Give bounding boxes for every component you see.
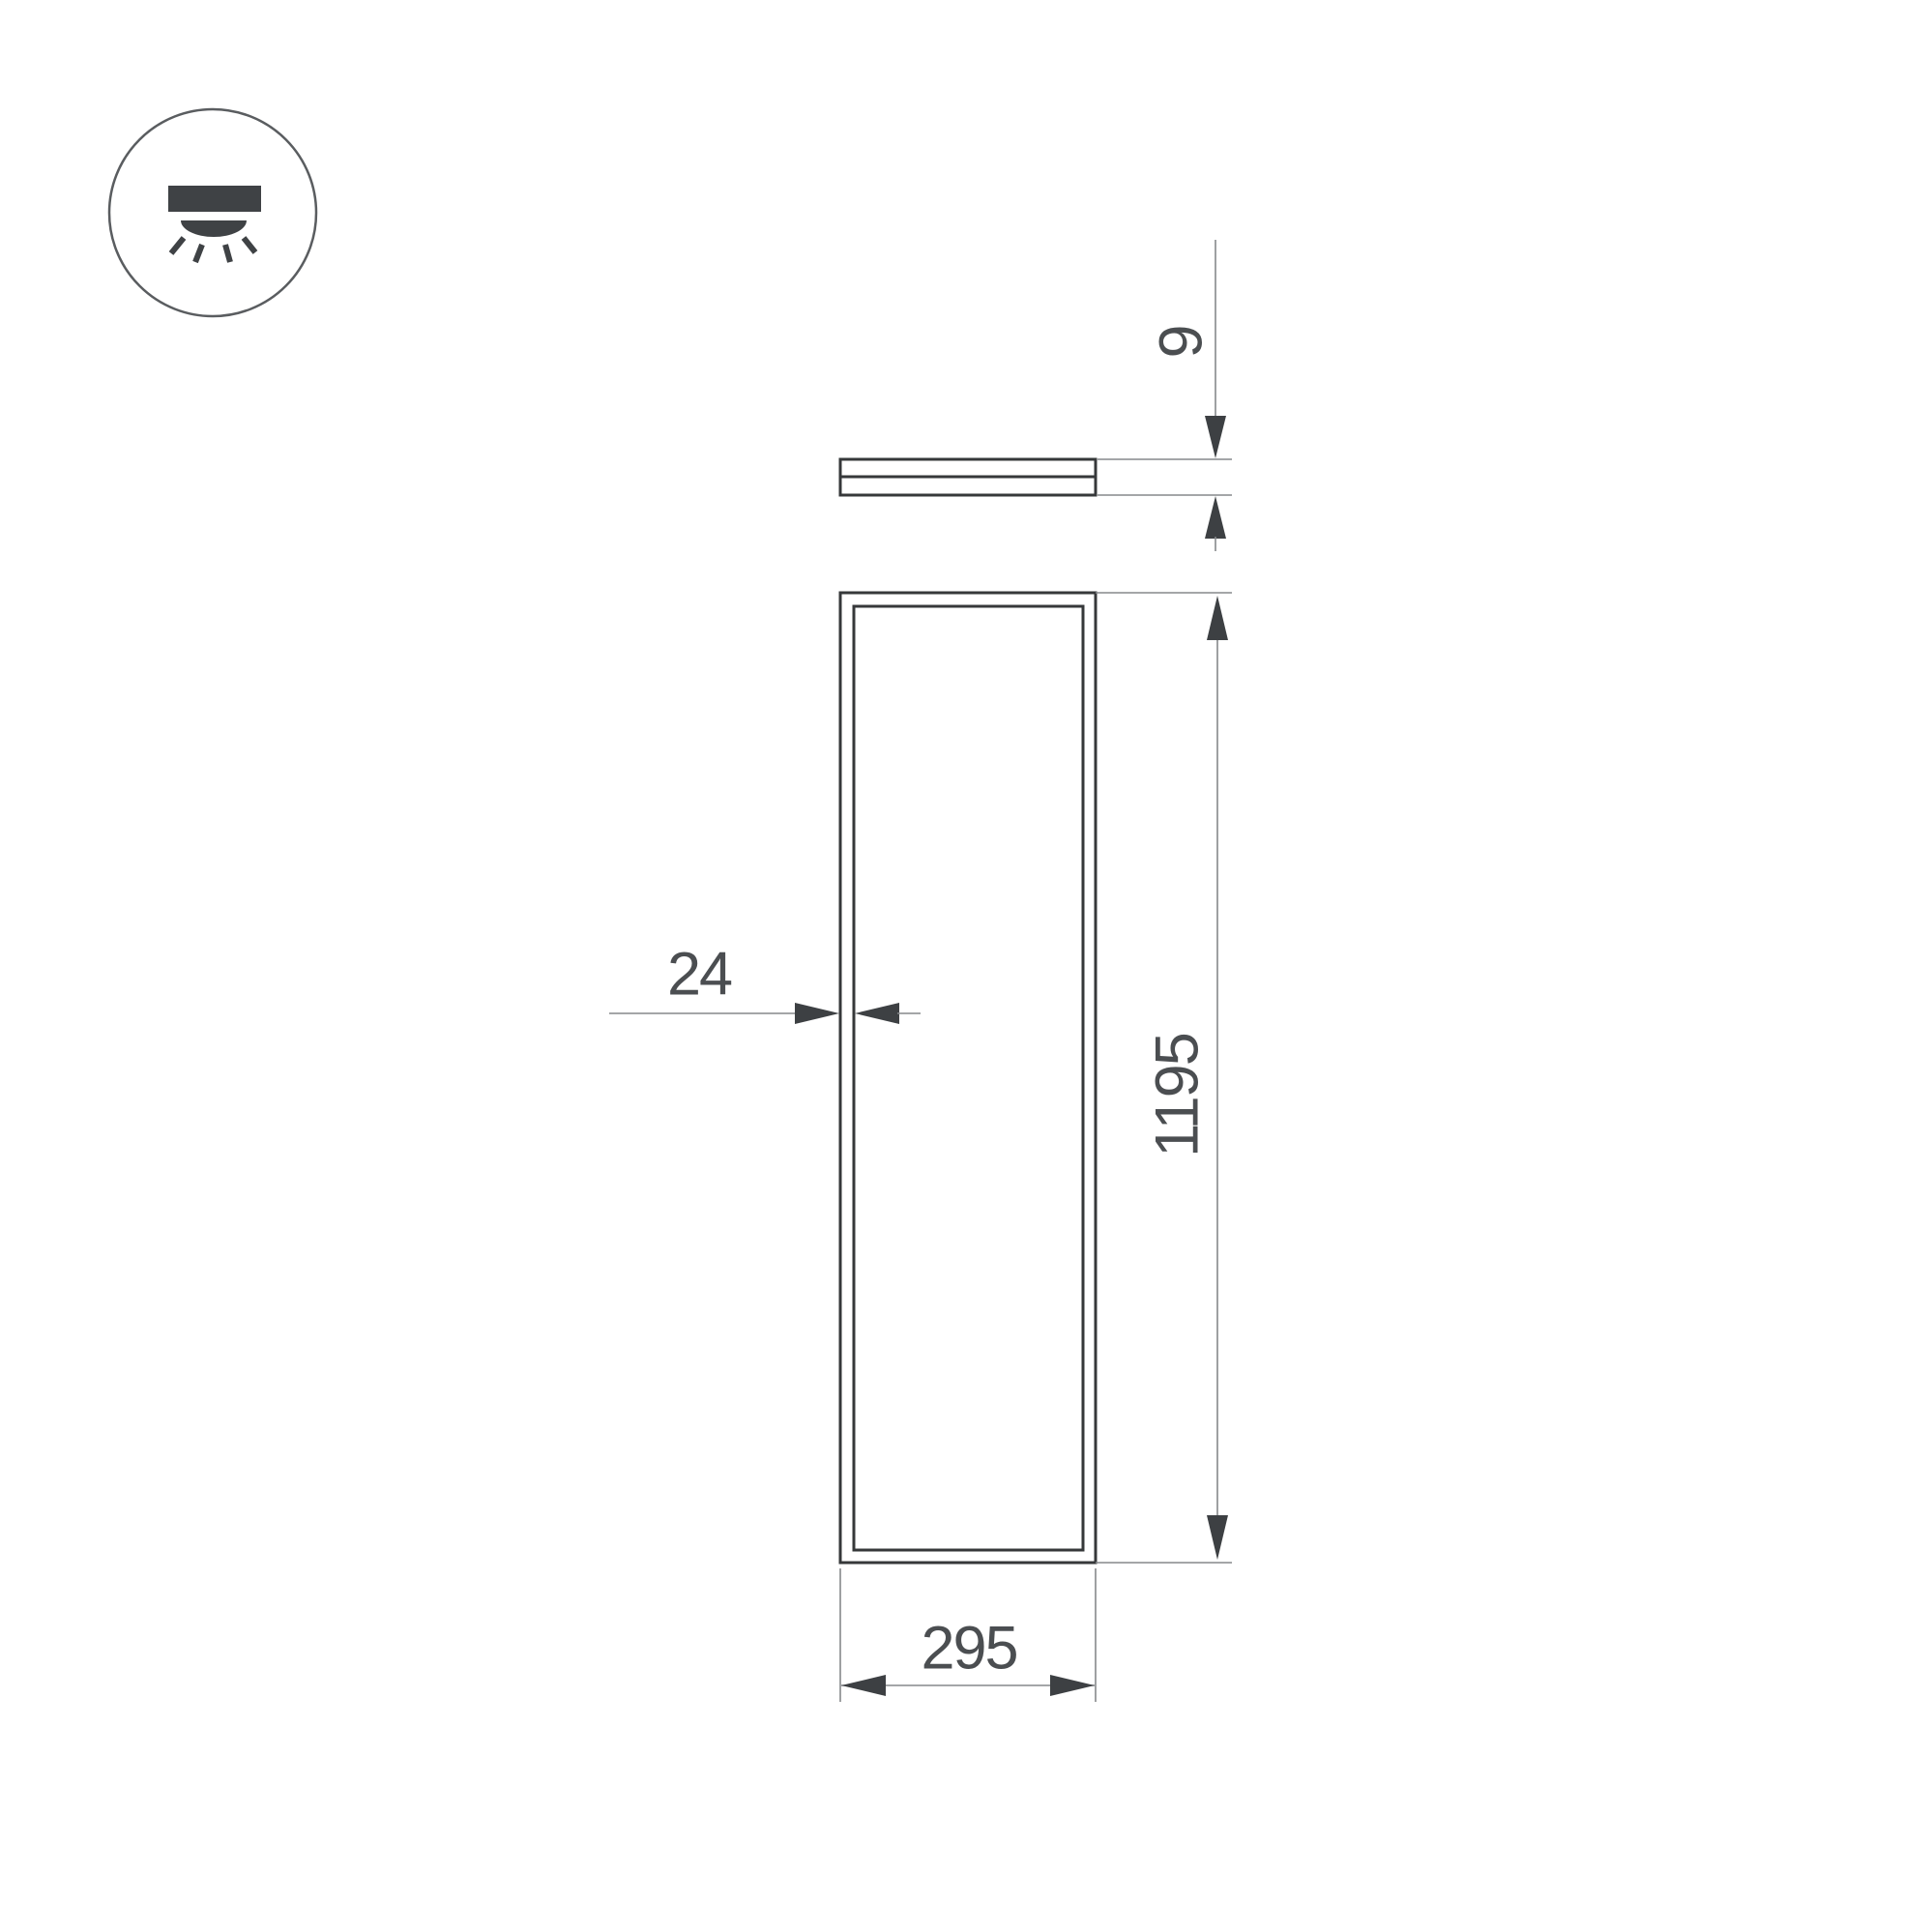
light-ray-icon bbox=[225, 245, 230, 262]
side-view bbox=[840, 459, 1096, 495]
dimension-label-width: 295 bbox=[921, 1619, 1016, 1680]
dimension-label-frame: 24 bbox=[667, 945, 731, 1006]
arrowhead-down-icon bbox=[1205, 416, 1226, 458]
arrowhead-up-icon bbox=[1205, 496, 1226, 539]
dimension-label-height: 9 bbox=[1152, 326, 1213, 358]
front-view bbox=[840, 593, 1096, 1563]
arrowhead-left-icon bbox=[841, 1675, 886, 1696]
technical-drawing-page: 9 1195 24 295 bbox=[0, 0, 1932, 1932]
dimension-9 bbox=[1098, 240, 1232, 551]
arrowhead-up-icon bbox=[1207, 596, 1228, 640]
light-ray-icon bbox=[244, 238, 255, 252]
arrowhead-right-icon bbox=[1050, 1675, 1095, 1696]
surface-downlight-icon bbox=[109, 109, 316, 316]
light-ray-icon bbox=[195, 245, 202, 262]
arrowhead-right-icon bbox=[795, 1003, 839, 1024]
dimension-label-length: 1195 bbox=[1148, 1034, 1209, 1156]
lamp-body bbox=[168, 186, 261, 212]
lamp-dome bbox=[181, 220, 247, 237]
light-ray-icon bbox=[171, 238, 184, 253]
front-view-outer-frame bbox=[840, 593, 1096, 1563]
arrowhead-down-icon bbox=[1207, 1515, 1228, 1560]
icon-circle bbox=[109, 109, 316, 316]
